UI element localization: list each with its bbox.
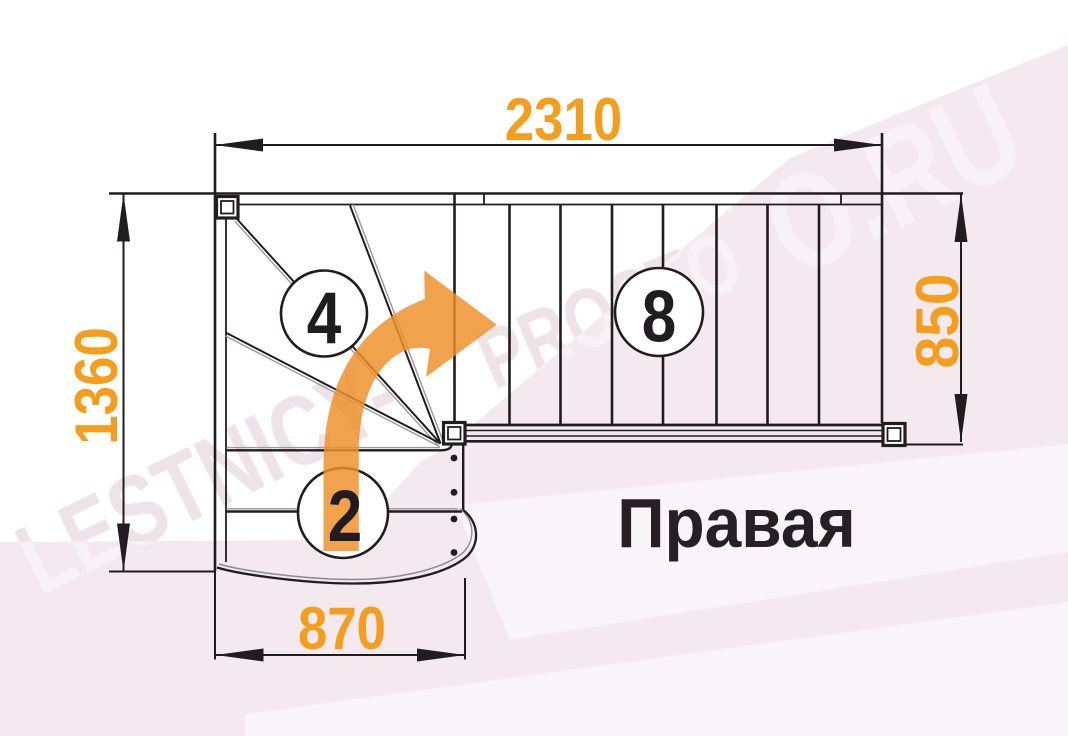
svg-text:4: 4 [307,279,342,360]
svg-text:850: 850 [905,273,972,368]
svg-text:1360: 1360 [63,327,130,444]
svg-text:Правая: Правая [617,485,856,562]
svg-text:870: 870 [298,595,386,662]
svg-text:2: 2 [328,476,363,557]
svg-text:2310: 2310 [505,86,622,153]
svg-text:8: 8 [642,277,677,358]
